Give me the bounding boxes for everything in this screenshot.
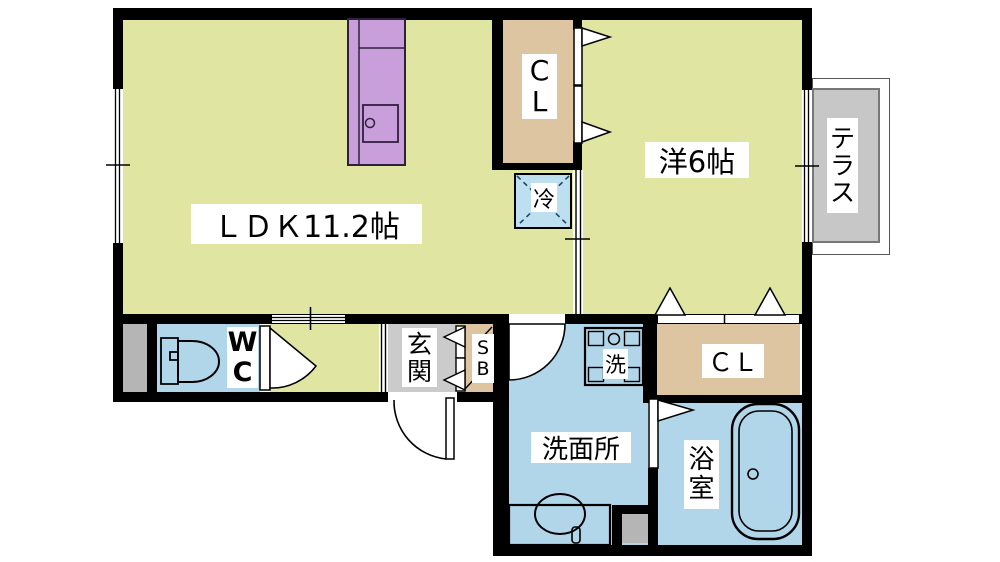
window-right-terrace-door — [802, 90, 812, 242]
wall-wc-left — [147, 314, 157, 392]
shoebox-label-text: SB — [472, 338, 494, 379]
wall-washroom-closet-divider — [643, 324, 657, 395]
washroom-label: 洗面所 — [531, 432, 631, 463]
bathroom — [658, 403, 802, 545]
wall-top — [113, 8, 812, 20]
washroom-gray-box — [622, 514, 648, 543]
entrance-label-text: 玄関 — [405, 331, 434, 385]
ldk-label: ＬＤＫ11.2帖 — [191, 204, 422, 244]
wall-closet-upper-stub-top — [573, 20, 582, 30]
wall-closet-bath — [643, 395, 812, 403]
wc-label-text: WC — [227, 328, 258, 386]
window-left — [113, 89, 123, 243]
sliding-door-ldk-hall — [272, 314, 345, 324]
refrigerator-label: 冷 — [531, 183, 557, 212]
wall-washblock-left — [493, 314, 509, 556]
wall-wash-stub-v — [612, 505, 622, 545]
shoebox-label: SB — [472, 334, 494, 383]
western-room-label-text: 洋6帖 — [659, 139, 735, 181]
terrace-label: テラス — [827, 118, 858, 213]
ldk-label-text: ＬＤＫ11.2帖 — [213, 202, 400, 246]
wall-closet-upper-left — [492, 20, 503, 170]
entrance-step-band — [379, 324, 388, 392]
wall-closet-upper-bottom — [492, 163, 582, 170]
closet-upper-label: CL — [522, 54, 557, 119]
bathroom-label: 浴室 — [684, 440, 719, 509]
bathroom-label-text: 浴室 — [687, 446, 717, 502]
hallway — [270, 324, 379, 392]
terrace-label-text: テラス — [828, 125, 857, 206]
closet-lower-label-text: ＣＬ — [708, 343, 758, 379]
closet-lower-label: ＣＬ — [702, 344, 764, 378]
wc-label: WC — [227, 327, 258, 388]
closet-upper-label-text: CL — [524, 56, 556, 116]
wall-bottom-right — [493, 545, 812, 556]
partition-ldk-western — [573, 170, 583, 314]
closet-lower-door-track — [657, 314, 800, 324]
front-door-gap — [388, 392, 457, 402]
storage-gray-box — [122, 323, 147, 392]
washer-label: 洗 — [603, 349, 628, 379]
washroom-door-gap — [509, 314, 565, 324]
western-room-label: 洋6帖 — [645, 142, 749, 178]
washroom-label-text: 洗面所 — [542, 429, 620, 466]
refrigerator-label-text: 冷 — [533, 182, 555, 214]
floor-plan: ＬＤＫ11.2帖 洋6帖 CL 冷 テラス WC 玄関 SB ＣＬ 洗 洗面所 … — [0, 0, 1000, 562]
washer-label-text: 洗 — [605, 349, 626, 379]
wall-closet-upper-stub-bottom — [573, 141, 582, 163]
entrance-label: 玄関 — [402, 328, 437, 387]
front-door-icon — [394, 398, 454, 459]
